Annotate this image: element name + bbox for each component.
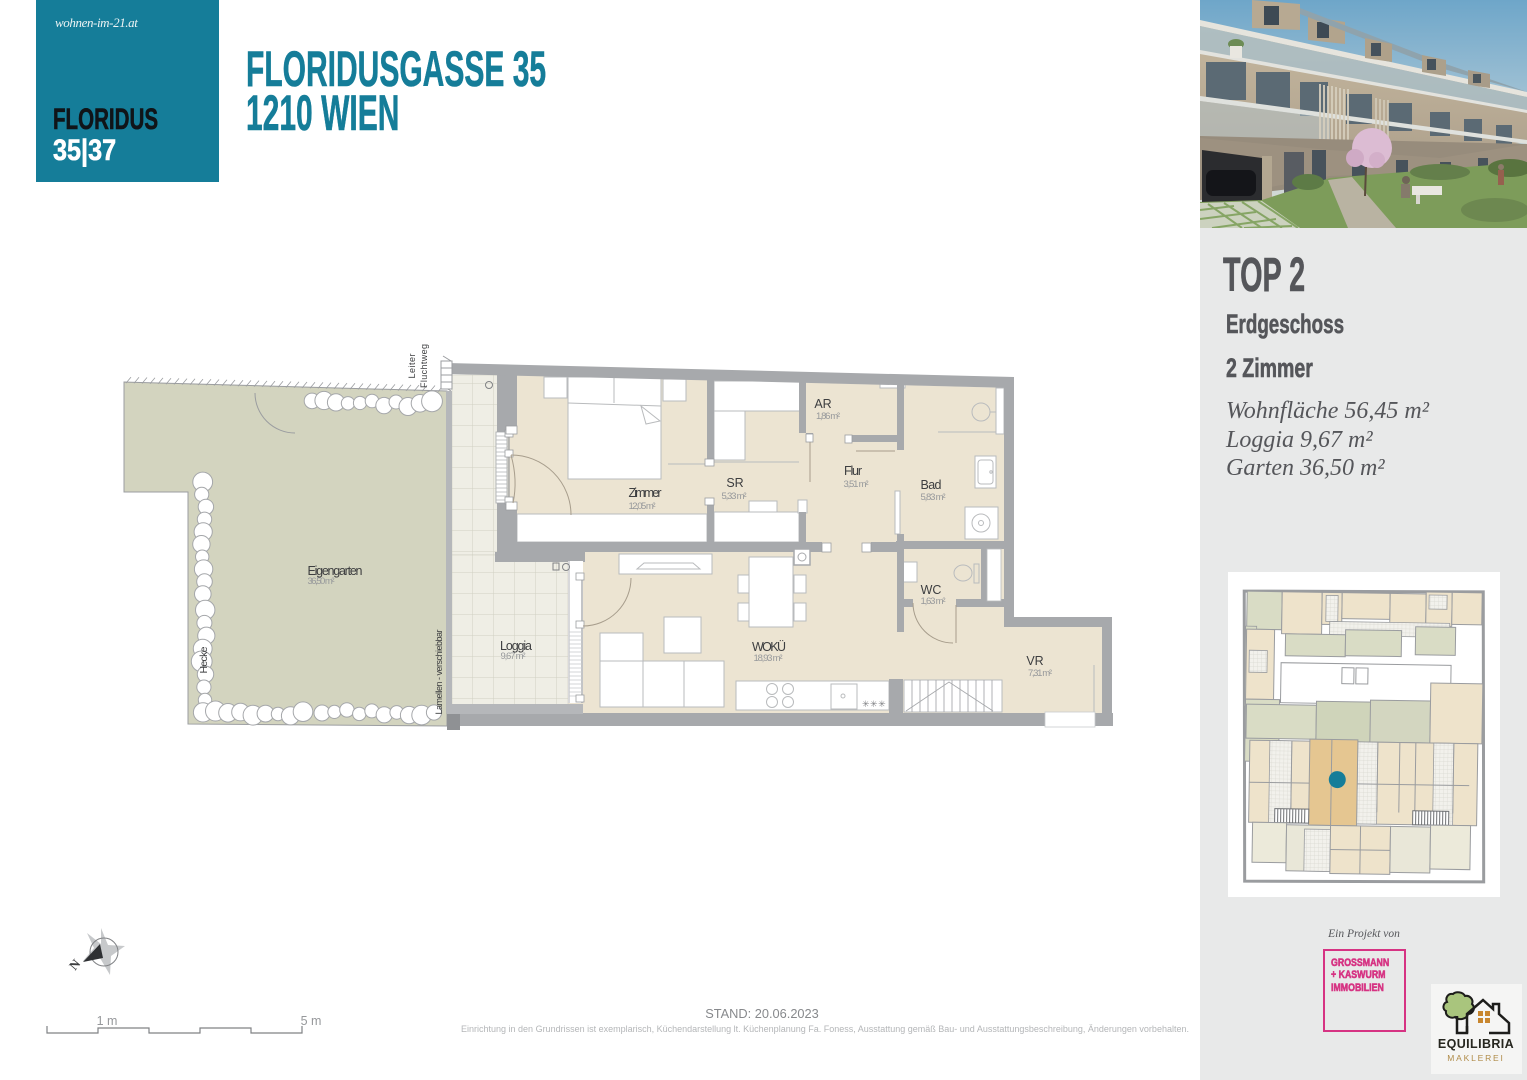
svg-text:5,83 m²: 5,83 m² bbox=[921, 492, 946, 503]
svg-text:Zimmer: Zimmer bbox=[629, 486, 662, 500]
svg-text:Leiter: Leiter bbox=[407, 354, 417, 379]
svg-text:1,86 m²: 1,86 m² bbox=[816, 411, 840, 422]
svg-text:3,51 m²: 3,51 m² bbox=[844, 479, 869, 490]
svg-text:Lamellen - verschiebbar: Lamellen - verschiebbar bbox=[434, 630, 444, 715]
svg-text:7,31 m²: 7,31 m² bbox=[1028, 668, 1052, 679]
svg-text:Hecke: Hecke bbox=[198, 646, 210, 673]
svg-text:WC: WC bbox=[921, 583, 942, 597]
svg-text:✳✳✳: ✳✳✳ bbox=[862, 699, 886, 709]
svg-text:WOKÜ: WOKÜ bbox=[752, 640, 786, 654]
svg-text:Bad: Bad bbox=[921, 478, 942, 492]
svg-text:12,05 m²: 12,05 m² bbox=[629, 501, 656, 512]
svg-text:Fluchtweg: Fluchtweg bbox=[419, 344, 429, 388]
svg-text:1,63 m²: 1,63 m² bbox=[921, 596, 946, 607]
svg-text:MAKLEREI: MAKLEREI bbox=[1447, 1053, 1504, 1063]
svg-text:5 m: 5 m bbox=[301, 1014, 322, 1028]
svg-text:36,50 m²: 36,50 m² bbox=[308, 576, 335, 587]
svg-text:N: N bbox=[66, 956, 84, 973]
svg-text:18,93 m²: 18,93 m² bbox=[754, 653, 783, 664]
svg-text:VR: VR bbox=[1026, 654, 1043, 668]
svg-text:1 m: 1 m bbox=[97, 1014, 118, 1028]
svg-text:SR: SR bbox=[726, 476, 743, 490]
svg-text:EQUILIBRIA: EQUILIBRIA bbox=[1438, 1037, 1514, 1051]
svg-text:Flur: Flur bbox=[844, 464, 862, 478]
svg-text:5,33 m²: 5,33 m² bbox=[722, 491, 747, 502]
svg-text:9,67 m²: 9,67 m² bbox=[501, 651, 526, 662]
svg-text:AR: AR bbox=[814, 397, 831, 411]
